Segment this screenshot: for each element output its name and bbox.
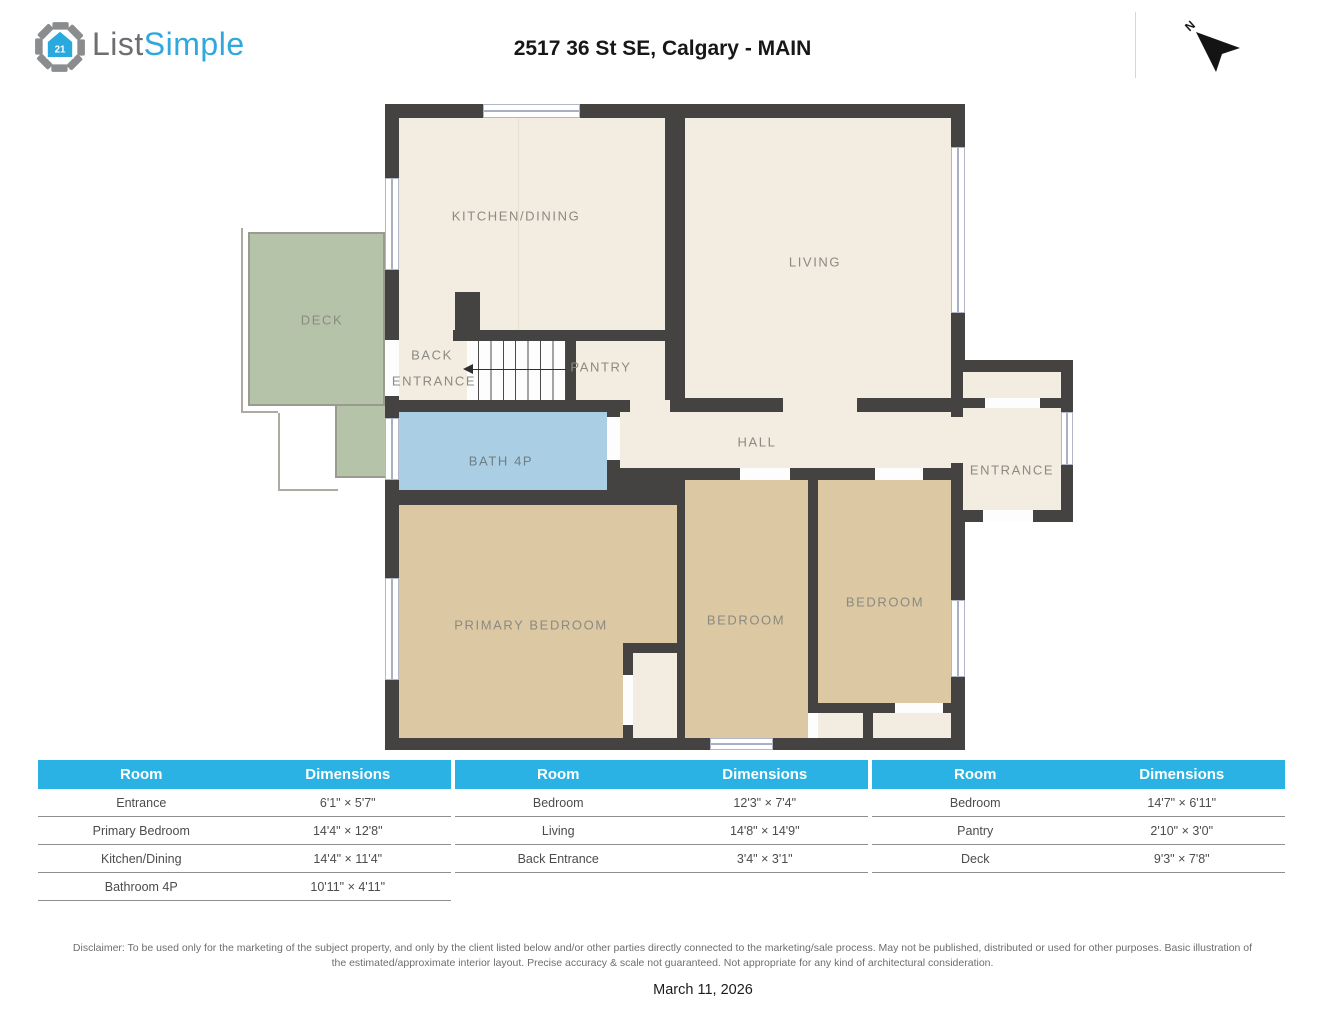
dimensions-table-2: Room Dimensions Bedroom 12'3" × 7'4" Liv… [455,760,868,873]
deck-step-outline [278,413,338,491]
col-header-dimensions: Dimensions [245,766,452,783]
room-cell: Back Entrance [455,852,662,866]
plan-date: March 11, 2026 [653,982,753,998]
room-cell: Living [455,824,662,838]
table-row: Living 14'8" × 14'9" [455,817,868,845]
col-header-room: Room [38,766,245,783]
closet-bottom-left [818,713,863,738]
table-header: Room Dimensions [455,760,868,789]
dimensions-cell: 10'11" × 4'11" [245,880,452,894]
table-row: Kitchen/Dining 14'4" × 11'4" [38,845,451,873]
stairs-direction-arrow [472,369,566,370]
closet-primary [633,653,677,738]
room-cell: Pantry [872,824,1079,838]
dimensions-cell: 3'4" × 3'1" [662,852,869,866]
window [385,578,399,680]
label-back-entrance-2: ENTRANCE [392,374,476,389]
table-row: Deck 9'3" × 7'8" [872,845,1285,873]
table-row: Primary Bedroom 14'4" × 12'8" [38,817,451,845]
door-bath [607,417,620,460]
room-cell: Deck [872,852,1079,866]
table-row: Entrance 6'1" × 5'7" [38,789,451,817]
window [710,738,773,750]
chimney-stub-wall [455,292,480,341]
room-cell: Bedroom [872,796,1079,810]
disclaimer-line-2: the estimated/approximate interior layou… [0,956,1325,971]
label-living: LIVING [789,255,841,270]
stairs-arrow-head-icon [463,364,473,374]
room-entrance [963,408,1061,510]
table-header: Room Dimensions [38,760,451,789]
window [1061,412,1073,465]
room-bedroom-right [818,480,951,703]
label-entrance: ENTRANCE [970,463,1054,478]
door-closet-primary [623,675,633,725]
label-bedroom-middle: BEDROOM [707,613,785,628]
col-header-dimensions: Dimensions [1079,766,1286,783]
door-hall-bedroom-middle [740,468,790,480]
dimensions-cell: 12'3" × 7'4" [662,796,869,810]
table-row: Bathroom 4P 10'11" × 4'11" [38,873,451,901]
room-cell: Kitchen/Dining [38,852,245,866]
label-kitchen-dining: KITCHEN/DINING [452,209,581,224]
disclaimer-line-1: Disclaimer: To be used only for the mark… [0,941,1325,956]
dimensions-cell: 14'8" × 14'9" [662,824,869,838]
window [951,600,965,677]
dimensions-table-1: Room Dimensions Entrance 6'1" × 5'7" Pri… [38,760,451,901]
dimensions-cell: 14'4" × 12'8" [245,824,452,838]
dimensions-cell: 14'7" × 6'11" [1079,796,1286,810]
opening-pantry-hall [630,400,670,412]
door-bedroom-closet [808,713,818,738]
label-deck: DECK [301,313,344,328]
window [385,418,399,480]
table-row: Back Entrance 3'4" × 3'1" [455,845,868,873]
dimensions-cell: 14'4" × 11'4" [245,852,452,866]
col-header-dimensions: Dimensions [662,766,869,783]
window [385,178,399,270]
entrance-landing [963,372,1061,398]
room-cell: Primary Bedroom [38,824,245,838]
window [483,104,580,118]
dimensions-table-3: Room Dimensions Bedroom 14'7" × 6'11" Pa… [872,760,1285,873]
opening-living-hall [783,398,857,412]
dimensions-cell: 2'10" × 3'0" [1079,824,1286,838]
room-kitchen-dining [399,118,665,330]
label-pantry: PANTRY [570,360,631,375]
label-primary-bedroom: PRIMARY BEDROOM [454,618,608,633]
table-row: Bedroom 12'3" × 7'4" [455,789,868,817]
label-hall: HALL [738,435,777,450]
door-entrance-south [983,510,1033,522]
flyer-page: 21 ListSimple 2517 36 St SE, Calgary - M… [0,0,1325,1023]
kitchen-floor-line [518,118,519,330]
dimensions-cell: 6'1" × 5'7" [245,796,452,810]
opening-kitchen-back [399,330,453,341]
label-bath: BATH 4P [469,454,533,469]
window [951,147,965,313]
dimensions-cell: 9'3" × 7'8" [1079,852,1286,866]
table-row: Bedroom 14'7" × 6'11" [872,789,1285,817]
table-header: Room Dimensions [872,760,1285,789]
room-deck-lower [335,406,385,478]
room-bedroom-middle [685,480,808,738]
col-header-room: Room [872,766,1079,783]
disclaimer-text: Disclaimer: To be used only for the mark… [0,941,1325,971]
door-closet-bottom-right [895,703,943,713]
door-hall-bedroom-right [875,468,923,480]
floorplan: KITCHEN/DINING LIVING DECK BACK ENTRANCE… [0,0,1325,760]
col-header-room: Room [455,766,662,783]
opening-hall-entrance [951,417,963,463]
room-cell: Bedroom [455,796,662,810]
stairs [467,341,566,400]
room-bath-4p [399,412,607,490]
table-row: Pantry 2'10" × 3'0" [872,817,1285,845]
room-hall [620,412,951,468]
label-back-entrance-1: BACK [411,348,453,363]
door-front [985,398,1040,408]
room-cell: Entrance [38,796,245,810]
room-cell: Bathroom 4P [38,880,245,894]
closet-bottom-right [873,713,951,738]
label-bedroom-right: BEDROOM [846,595,924,610]
